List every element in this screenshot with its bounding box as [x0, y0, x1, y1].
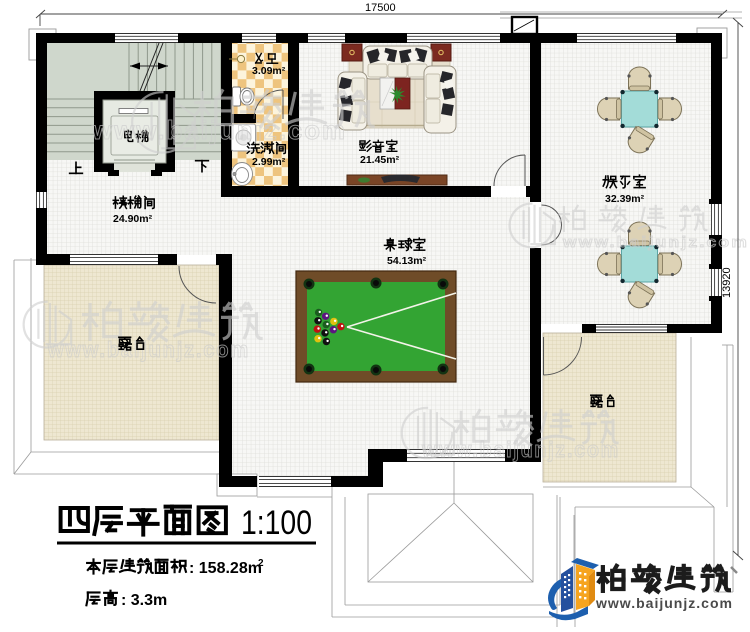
svg-text:1:100: 1:100	[241, 504, 312, 542]
svg-text:: 158.28m: : 158.28m	[189, 560, 262, 577]
svg-text:32.39m²: 32.39m²	[605, 193, 645, 205]
svg-text:www.baijunjz.com: www.baijunjz.com	[562, 234, 749, 251]
svg-text:13920: 13920	[721, 267, 733, 298]
svg-text:21.45m²: 21.45m²	[360, 154, 400, 166]
svg-text:www.baijunjz.com: www.baijunjz.com	[47, 337, 250, 362]
svg-text:www.baijunjz.com: www.baijunjz.com	[595, 595, 733, 611]
svg-text:54.13m²: 54.13m²	[387, 255, 427, 267]
svg-text:2.99m²: 2.99m²	[252, 156, 286, 168]
svg-text:: 3.3m: : 3.3m	[121, 592, 167, 609]
svg-text:3.09m²: 3.09m²	[252, 65, 286, 77]
svg-text:17500: 17500	[365, 2, 396, 14]
svg-text:24.90m²: 24.90m²	[113, 213, 153, 225]
svg-text:www.baijunjz.com: www.baijunjz.com	[91, 115, 347, 145]
svg-text:www.baijunjz.com: www.baijunjz.com	[421, 437, 620, 462]
svg-text:2: 2	[258, 558, 264, 569]
